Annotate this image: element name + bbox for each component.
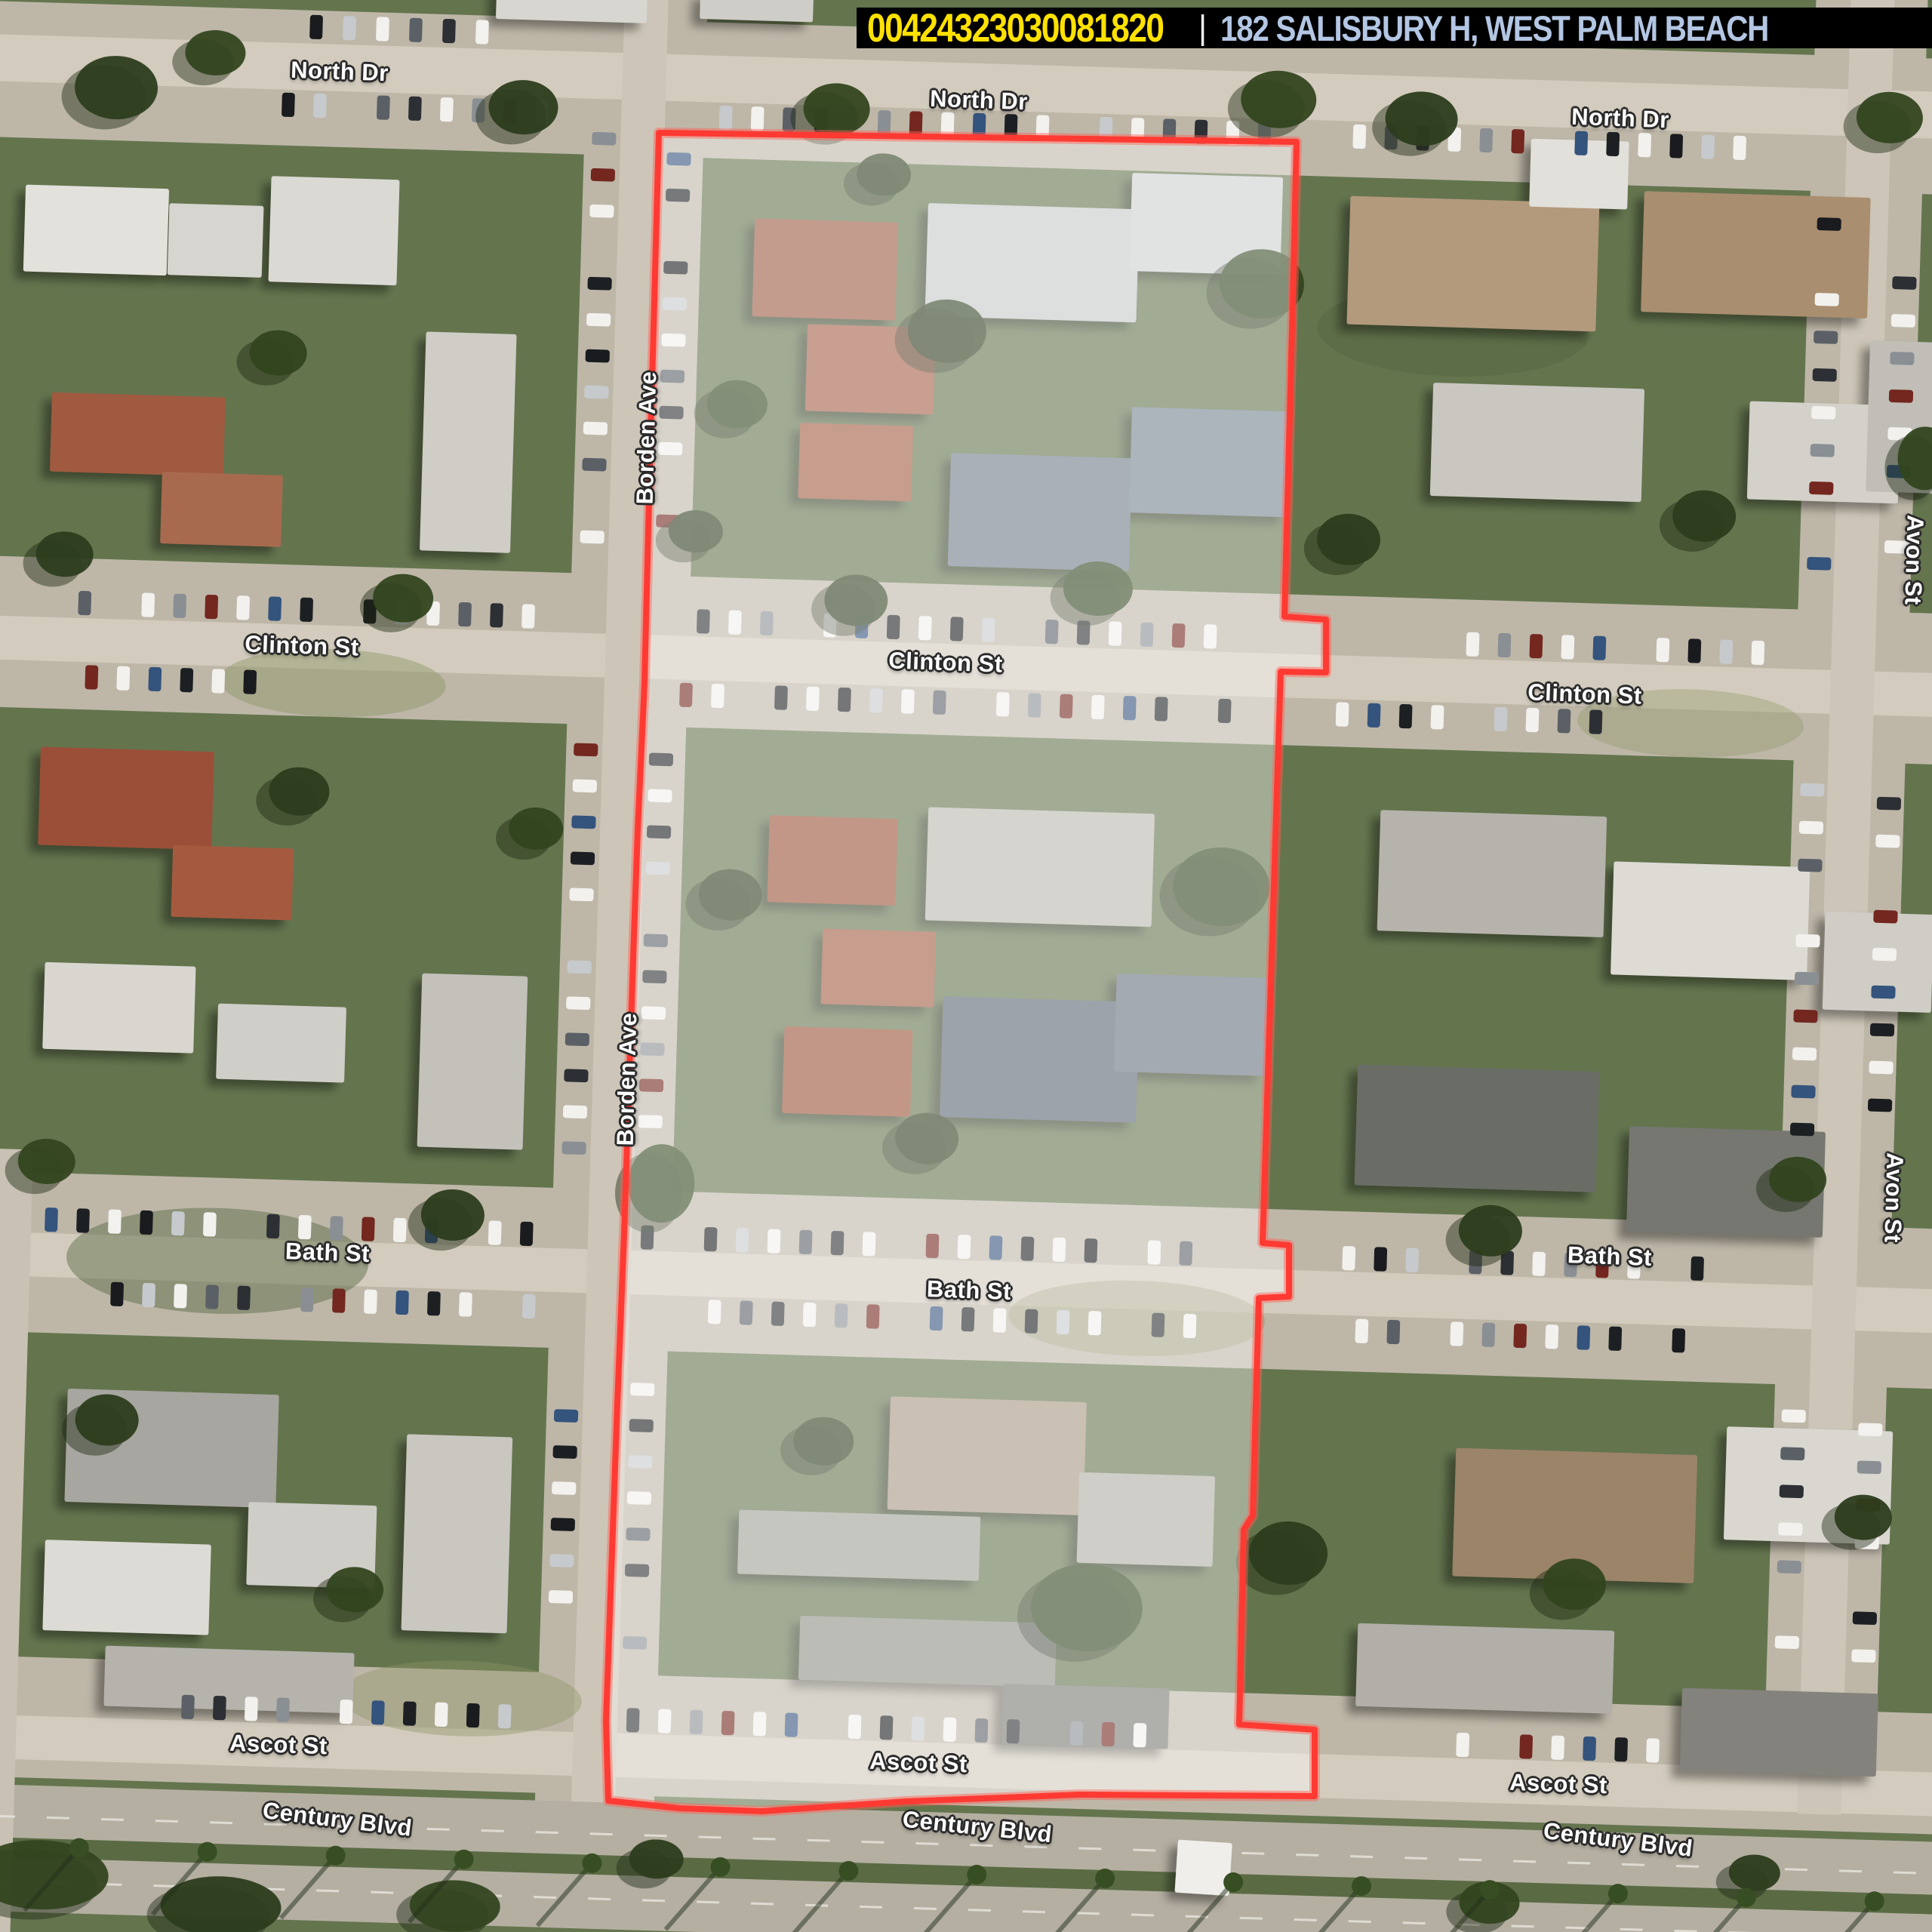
parked-car: [566, 996, 590, 1010]
building-roof: [42, 1540, 211, 1635]
parked-car: [571, 815, 595, 829]
parked-car: [281, 93, 295, 117]
parked-car: [1869, 1061, 1893, 1075]
parked-car: [591, 168, 615, 182]
parked-car: [174, 1284, 187, 1308]
parked-car: [1497, 633, 1511, 657]
parcel-address: 182 SALISBURY H, WEST PALM BEACH: [1220, 8, 1768, 49]
parked-car: [586, 349, 610, 363]
building-roof: [1355, 1623, 1614, 1714]
building-roof: [171, 845, 294, 921]
parked-car: [45, 1207, 58, 1232]
parked-car: [1450, 1321, 1463, 1346]
parked-car: [1519, 1734, 1533, 1758]
parked-car: [268, 596, 281, 620]
parked-car: [1877, 797, 1901, 811]
parked-car: [1795, 934, 1820, 948]
parked-car: [719, 106, 733, 130]
parked-car: [213, 1696, 226, 1720]
parked-car: [1870, 1023, 1894, 1037]
parked-car: [1479, 128, 1493, 152]
aerial-imagery: [0, 0, 1932, 1932]
parked-car: [181, 1695, 195, 1719]
parked-car: [1583, 1737, 1596, 1761]
parked-car: [1564, 1253, 1577, 1277]
parked-car: [521, 604, 535, 628]
parked-car: [583, 422, 608, 435]
building-roof: [1175, 1840, 1232, 1897]
parked-car: [76, 1208, 90, 1232]
parked-car: [142, 1283, 155, 1307]
parked-car: [173, 594, 186, 618]
parked-car: [116, 666, 130, 690]
parked-car: [1891, 314, 1915, 328]
parked-car: [582, 458, 606, 472]
parked-car: [1589, 709, 1602, 734]
parked-car: [1812, 368, 1836, 382]
parked-car: [1792, 1048, 1817, 1061]
parked-car: [563, 1105, 587, 1118]
parked-car: [1386, 1320, 1400, 1344]
parked-car: [1511, 129, 1524, 153]
parked-car: [1889, 389, 1913, 403]
parked-car: [574, 743, 598, 756]
parked-car: [1669, 134, 1683, 158]
parked-car: [266, 1214, 280, 1238]
parked-car: [458, 602, 472, 626]
parked-car: [1656, 638, 1669, 662]
parked-car: [1814, 293, 1838, 306]
building-roof: [1355, 1064, 1600, 1192]
parked-car: [140, 1211, 153, 1235]
parked-car: [1793, 1010, 1817, 1023]
parked-car: [1795, 972, 1819, 986]
parked-car: [1811, 406, 1835, 420]
parked-car: [552, 1481, 576, 1495]
parked-car: [1858, 1423, 1882, 1436]
parked-car: [1352, 125, 1366, 149]
parked-car: [403, 1701, 417, 1725]
parked-car: [1513, 1324, 1527, 1348]
parked-car: [466, 1703, 480, 1727]
parked-car: [1456, 1733, 1469, 1757]
parked-car: [1355, 1319, 1368, 1343]
parked-car: [1868, 1099, 1892, 1112]
parked-car: [85, 665, 98, 689]
parked-car: [1701, 134, 1715, 158]
parked-car: [1809, 481, 1833, 495]
parked-car: [364, 1290, 377, 1314]
parked-car: [1646, 1738, 1660, 1762]
parked-car: [1558, 709, 1571, 733]
parked-car: [108, 1209, 122, 1233]
parked-car: [300, 598, 313, 622]
parked-car: [573, 779, 597, 792]
parked-car: [300, 1287, 314, 1312]
parked-car: [361, 1217, 375, 1241]
parked-car: [549, 1590, 573, 1604]
parked-car: [490, 603, 503, 627]
parked-car: [395, 1291, 409, 1315]
parked-car: [1595, 1254, 1609, 1278]
building-roof: [42, 962, 195, 1054]
parked-car: [498, 1704, 512, 1728]
parked-car: [1851, 1649, 1875, 1663]
parked-car: [554, 1409, 578, 1423]
parked-car: [1884, 540, 1909, 554]
parked-car: [586, 313, 611, 327]
parked-car: [589, 205, 614, 218]
parked-car: [1810, 444, 1835, 457]
parked-car: [488, 1220, 502, 1244]
parked-car: [561, 1141, 586, 1155]
parked-car: [330, 1216, 343, 1240]
parked-car: [1466, 632, 1479, 656]
parked-car: [245, 1697, 258, 1721]
parked-car: [1526, 708, 1540, 732]
parked-car: [1871, 986, 1895, 999]
parked-car: [552, 1445, 577, 1459]
parcel-fill: [606, 133, 1326, 1811]
parked-car: [1551, 1735, 1564, 1759]
parked-car: [1853, 1611, 1877, 1625]
parked-car: [1336, 702, 1349, 726]
parcel-id: 00424323030081820: [867, 5, 1163, 51]
parked-car: [408, 97, 422, 121]
parked-car: [371, 1700, 385, 1724]
parked-car: [1791, 1085, 1815, 1099]
parked-car: [1577, 1325, 1590, 1349]
parked-car: [237, 1286, 251, 1310]
building-roof: [417, 974, 528, 1150]
parked-car: [1780, 1447, 1804, 1460]
parked-car: [332, 1288, 346, 1312]
parked-car: [1780, 1484, 1804, 1498]
parked-car: [1733, 136, 1746, 160]
parked-car: [211, 669, 225, 693]
parked-car: [180, 668, 193, 692]
parked-car: [1494, 707, 1508, 731]
parked-car: [1873, 910, 1897, 924]
parked-car: [1532, 1251, 1546, 1275]
parked-car: [440, 97, 454, 122]
parked-car: [1529, 634, 1543, 658]
parked-car: [520, 1222, 534, 1246]
parked-car: [1799, 821, 1823, 835]
building-roof: [103, 1646, 354, 1714]
parked-car: [1574, 131, 1588, 155]
parked-car: [1807, 557, 1831, 571]
parked-car: [584, 386, 608, 399]
parked-car: [1814, 331, 1838, 344]
parked-car: [276, 1697, 290, 1721]
parked-car: [393, 1218, 407, 1242]
parked-car: [313, 94, 327, 118]
parked-car: [1817, 217, 1841, 231]
parked-car: [522, 1294, 536, 1318]
parked-car: [236, 595, 250, 620]
parked-car: [1614, 1737, 1628, 1761]
parked-car: [564, 1069, 588, 1082]
parked-car: [549, 1554, 574, 1567]
parked-car: [475, 20, 489, 44]
parked-car: [376, 17, 389, 41]
parked-car: [1892, 276, 1916, 290]
parked-car: [148, 667, 162, 691]
parked-car: [592, 132, 616, 146]
parked-car: [1857, 1460, 1881, 1474]
parked-car: [435, 1703, 448, 1727]
parked-car: [1798, 859, 1822, 872]
parked-car: [377, 95, 390, 119]
parked-car: [1672, 1328, 1685, 1352]
parked-car: [571, 851, 595, 865]
parked-car: [1405, 1247, 1419, 1272]
parked-car: [171, 1211, 185, 1235]
parked-car: [1367, 703, 1381, 728]
parked-car: [205, 1284, 219, 1309]
parked-car: [340, 1700, 353, 1724]
building-roof: [168, 203, 264, 278]
parked-car: [1719, 639, 1733, 663]
parked-car: [459, 1292, 472, 1316]
parked-car: [1778, 1522, 1802, 1536]
parked-car: [1800, 783, 1824, 797]
parked-car: [1342, 1246, 1355, 1270]
parked-car: [1775, 1635, 1799, 1649]
parked-car: [1606, 132, 1620, 156]
parked-car: [1751, 641, 1764, 665]
parked-car: [565, 1032, 589, 1046]
building-roof: [38, 747, 214, 851]
building-roof: [216, 1004, 346, 1083]
parked-car: [1431, 705, 1444, 729]
parked-car: [243, 669, 257, 694]
building-roof: [1346, 196, 1599, 332]
building-roof: [50, 392, 226, 477]
parked-car: [1777, 1560, 1801, 1574]
parked-car: [343, 16, 356, 40]
parked-car: [1399, 704, 1413, 728]
aerial-map-canvas[interactable]: North DrNorth DrNorth DrBorden AveBorden…: [0, 0, 1932, 1932]
parked-car: [409, 18, 423, 42]
header-separator: |: [1198, 9, 1207, 47]
parked-car: [1687, 638, 1701, 663]
building-roof: [1430, 383, 1644, 502]
parked-car: [1627, 1254, 1641, 1278]
building-roof: [700, 0, 814, 22]
parked-car: [1638, 133, 1651, 157]
parked-car: [1608, 1326, 1622, 1350]
parked-car: [78, 591, 91, 615]
parcel-header-bar: 00424323030081820 | 182 SALISBURY H, WES…: [857, 8, 1932, 48]
parked-car: [1890, 352, 1914, 365]
building-roof: [268, 176, 399, 285]
parked-car: [309, 15, 323, 39]
parked-car: [1782, 1409, 1806, 1423]
parked-car: [203, 1212, 217, 1236]
parked-car: [1592, 635, 1606, 660]
parked-car: [567, 960, 591, 974]
parked-car: [110, 1282, 124, 1306]
parked-car: [580, 531, 604, 544]
building-roof: [401, 1434, 513, 1633]
parked-car: [1875, 835, 1900, 848]
parked-car: [298, 1215, 312, 1239]
parked-car: [1374, 1247, 1387, 1271]
parked-car: [1790, 1122, 1814, 1136]
parked-car: [551, 1518, 575, 1531]
building-roof: [1680, 1688, 1878, 1777]
parked-car: [751, 106, 764, 131]
parked-car: [141, 592, 155, 617]
parked-car: [569, 888, 593, 901]
building-roof: [420, 331, 517, 552]
building-roof: [23, 185, 169, 276]
building-roof: [1611, 861, 1810, 980]
building-roof: [160, 472, 283, 547]
parcel-overlay: [606, 133, 1326, 1811]
parked-car: [587, 277, 611, 291]
building-roof: [1377, 810, 1607, 937]
parked-car: [442, 19, 456, 43]
parked-car: [1545, 1324, 1558, 1349]
parked-car: [1872, 948, 1897, 961]
parked-car: [1481, 1323, 1495, 1347]
parked-car: [1561, 635, 1574, 659]
parked-car: [205, 595, 218, 619]
parked-car: [1690, 1257, 1704, 1281]
parked-car: [427, 1291, 441, 1315]
